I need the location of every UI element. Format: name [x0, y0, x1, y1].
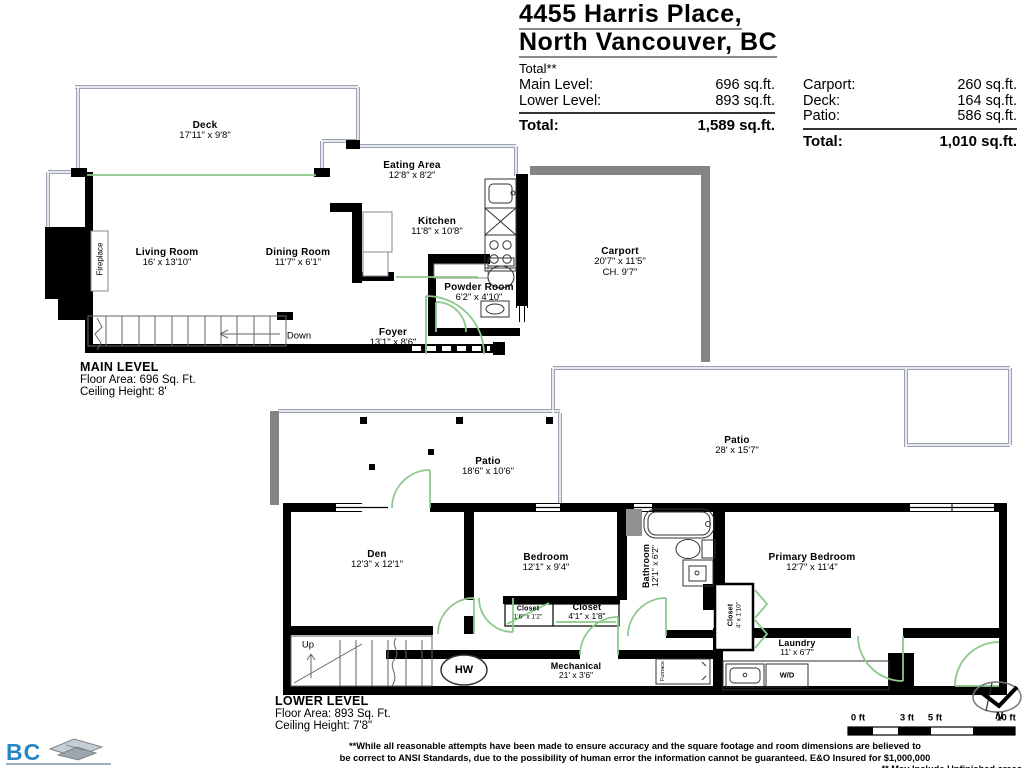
bc-floor-plans-logo: BC FLOOR PLANS	[6, 736, 111, 768]
table-row: Main Level: 696 sq.ft.	[519, 78, 775, 94]
scale-bar	[848, 727, 1015, 735]
disclaimer: **While all reasonable attempts have bee…	[248, 741, 1022, 768]
divider	[519, 112, 775, 114]
disclaimer-line-1: **While all reasonable attempts have bee…	[248, 741, 1022, 753]
room-label-primary-bedroom: Primary Bedroom 12'7" x 11'4"	[769, 552, 856, 574]
scale-label-3ft: 3 ft	[900, 713, 914, 724]
scale-label-0ft: 0 ft	[851, 713, 865, 724]
north-label: N	[995, 710, 1003, 722]
room-label-eating-area: Eating Area 12'8" x 8'2"	[383, 160, 440, 182]
logo-graphic	[44, 736, 108, 762]
room-label-closet-hall: Closet 4'1" x 1'8"	[568, 602, 605, 622]
total-note: Total**	[519, 61, 775, 76]
divider	[803, 128, 1017, 130]
furnace-label: Furnace	[660, 661, 666, 681]
room-label-patio-upper: Patio 28' x 15'7"	[715, 435, 758, 457]
table-row: Patio: 586 sq.ft.	[803, 109, 1017, 125]
toilet-icon-lower	[676, 540, 715, 559]
room-label-den: Den 12'3" x 12'1"	[351, 549, 403, 571]
main-level-heading: MAIN LEVEL Floor Area: 696 Sq. Ft. Ceili…	[80, 361, 196, 399]
room-label-patio-lower: Patio 18'6" x 10'6"	[462, 456, 514, 478]
interior-areas-table: Total** Main Level: 696 sq.ft. Lower Lev…	[519, 61, 775, 149]
area-summary: Total** Main Level: 696 sq.ft. Lower Lev…	[519, 61, 1021, 149]
room-label-powder-room: Powder Room 6'2" x 4'10"	[444, 282, 513, 304]
laundry-sink-icon	[726, 664, 764, 687]
bathtub-icon	[626, 509, 714, 538]
address-line-1: 4455 Harris Place,	[519, 2, 742, 30]
room-label-closet-primary: Closet 4' x 1'10"	[727, 602, 742, 628]
room-label-mechanical: Mechanical 21' x 3'6"	[551, 661, 602, 681]
room-label-deck: Deck 17'11" x 9'8"	[179, 120, 230, 142]
logo-bc-text: BC	[6, 743, 41, 762]
laundry-counter	[723, 661, 889, 690]
page-title: 4455 Harris Place,	[519, 2, 1021, 30]
room-label-carport: Carport 20'7" x 11'5" CH. 9'7"	[594, 246, 645, 278]
floor-plan-sheet: 4455 Harris Place, North Vancouver, BC T…	[0, 0, 1024, 768]
disclaimer-line-2: be correct to ANSI Standards, due to the…	[248, 753, 1022, 765]
lower-level-heading: LOWER LEVEL Floor Area: 893 Sq. Ft. Ceil…	[275, 695, 391, 733]
kitchen-sink-icon	[485, 179, 516, 208]
room-label-kitchen: Kitchen 11'8" x 10'8"	[411, 216, 462, 238]
stairs-down-label: Down	[287, 331, 311, 342]
interior-total-row: Total: 1,589 sq.ft.	[519, 118, 775, 134]
table-row: Lower Level: 893 sq.ft.	[519, 94, 775, 110]
title-block: 4455 Harris Place, North Vancouver, BC T…	[519, 2, 1021, 149]
table-row: Carport: 260 sq.ft.	[803, 78, 1017, 94]
room-label-laundry: Laundry 11' x 6'7"	[779, 638, 816, 658]
washer-dryer-label: W/D	[780, 671, 795, 680]
dishwasher-icon	[485, 208, 516, 235]
address-line-2: North Vancouver, BC	[519, 30, 777, 58]
exterior-total-row: Total: 1,010 sq.ft.	[803, 134, 1017, 150]
scale-label-5ft: 5 ft	[928, 713, 942, 724]
room-label-dining-room: Dining Room 11'7" x 6'1"	[266, 247, 330, 269]
deck-railing	[48, 87, 358, 228]
table-row: Deck: 164 sq.ft.	[803, 94, 1017, 110]
exterior-areas-table: Carport: 260 sq.ft. Deck: 164 sq.ft. Pat…	[803, 61, 1017, 149]
room-label-bathroom: Bathroom 12'1" x 6'2"	[641, 544, 661, 588]
vanity-icon	[683, 560, 713, 586]
patio-railing	[270, 368, 1010, 505]
fireplace-label: Fireplace	[96, 243, 105, 276]
room-label-closet-small: Closet 1'6" x 1'2"	[514, 605, 542, 620]
room-label-living-room: Living Room 16' x 13'10"	[136, 247, 199, 269]
hw-tank-label: HW	[455, 664, 473, 676]
room-label-bedroom: Bedroom 12'1" x 9'4"	[523, 552, 570, 574]
disclaimer-line-3: ** May Include Unfinished areas	[248, 764, 1022, 768]
room-label-foyer: Foyer 13'1" x 8'6"	[370, 327, 417, 349]
stairs-up-label: Up	[302, 640, 314, 651]
